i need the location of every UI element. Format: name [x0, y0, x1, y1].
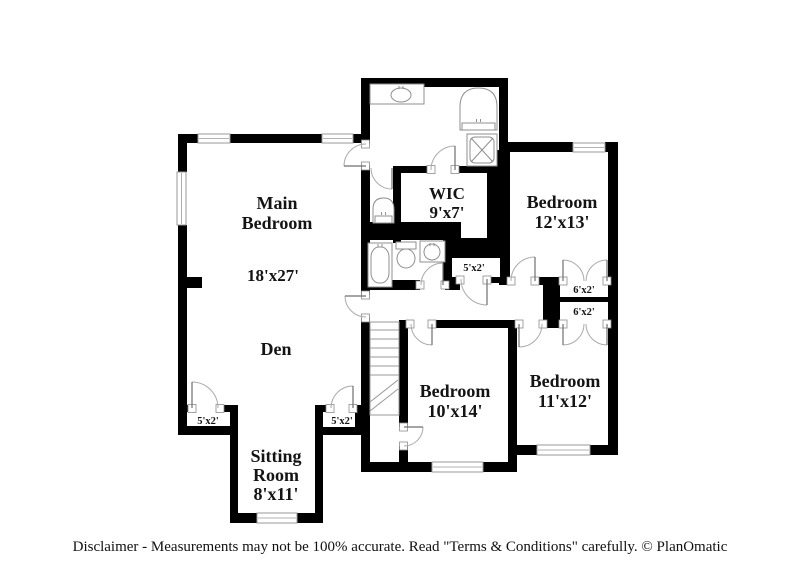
wall: [608, 142, 618, 455]
floor-plan: MainBedroom18'x27'DenWIC9'x7'Bedroom12'x…: [0, 0, 800, 582]
label-sitting-room: SittingRoom8'x11': [250, 446, 301, 504]
wall: [230, 513, 257, 523]
wall: [590, 445, 618, 455]
label-wic: WIC9'x7': [429, 184, 465, 222]
label-closet-5x2-left: 5'x2': [197, 416, 219, 427]
door-vestibule-arc: [371, 168, 392, 189]
wall: [432, 320, 519, 328]
wall: [508, 445, 537, 455]
wall: [187, 277, 202, 288]
door-jamb: [406, 320, 414, 328]
wall: [361, 462, 432, 472]
wall: [505, 142, 573, 152]
door-jamb: [456, 276, 464, 284]
label-closet-6x2-b: 6'x2': [573, 307, 595, 318]
wall: [230, 134, 322, 143]
label-bedroom-12x13: Bedroom12'x13': [527, 192, 598, 232]
wall: [499, 78, 508, 150]
label-closet-5x2-hall: 5'x2': [463, 263, 485, 274]
wall: [483, 462, 517, 472]
bathroom1-vanity-sink-basin: [391, 88, 411, 102]
door-jamb: [441, 281, 449, 289]
label-bedroom-10x14: Bedroom10'x14': [420, 381, 491, 421]
door-jamb: [362, 291, 370, 299]
wall: [178, 426, 238, 435]
label-den: Den: [261, 339, 292, 359]
wall: [361, 318, 370, 472]
disclaimer-text: Disclaimer - Measurements may not be 100…: [0, 539, 800, 556]
door-jamb: [362, 314, 370, 322]
label-main-bedroom-dims: 18'x27': [247, 266, 299, 285]
door-jamb: [216, 405, 224, 413]
stair-break-line: [370, 380, 398, 402]
floor-plan-page: MainBedroom18'x27'DenWIC9'x7'Bedroom12'x…: [0, 0, 800, 582]
wall: [560, 297, 608, 302]
door-jamb: [416, 281, 424, 289]
label-main-bedroom: MainBedroom: [242, 193, 313, 233]
wall: [399, 328, 408, 427]
bathroom2-sink-basin: [424, 244, 440, 260]
label-bedroom-11x12: Bedroom11'x12': [530, 371, 601, 411]
bathroom2-bathtub-inner: [371, 247, 389, 283]
wall: [178, 225, 187, 435]
wall: [361, 222, 461, 240]
door-jamb: [539, 320, 547, 328]
wall: [315, 405, 323, 523]
label-closet-6x2-a: 6'x2': [573, 285, 595, 296]
stair-break-line: [370, 389, 398, 411]
vestibule-toilet-tank: [375, 216, 392, 223]
bathroom2-toilet-bowl: [397, 249, 415, 268]
wall: [178, 134, 187, 172]
door-jamb: [326, 405, 334, 413]
bathroom2-toilet-tank: [396, 242, 416, 249]
label-closet-5x2-right: 5'x2': [331, 416, 353, 427]
wall: [443, 238, 510, 258]
bathroom1-toilet-tank: [462, 123, 495, 130]
staircase: [370, 322, 399, 415]
wall: [543, 277, 560, 325]
wall: [230, 405, 238, 523]
